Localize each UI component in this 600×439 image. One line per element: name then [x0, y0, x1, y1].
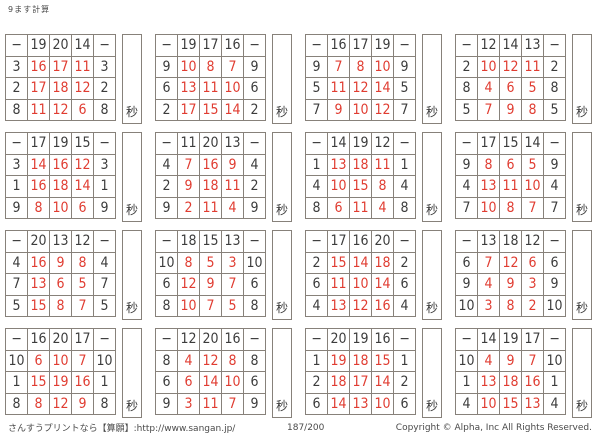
- answer-cell: 10: [372, 56, 394, 78]
- header-number: 15: [200, 231, 222, 253]
- seconds-box: 秒: [122, 132, 142, 222]
- copyright-text: Copyright © Alpha, Inc All Rights Reserv…: [396, 423, 592, 433]
- answer-cell: 7: [72, 295, 94, 317]
- minus-sign: −: [244, 329, 266, 351]
- row-number: 1: [306, 350, 328, 372]
- grid-row: 4 13 12 16 4: [306, 295, 416, 317]
- answer-cell: 10: [350, 99, 372, 121]
- grid-row: 1 13 18 16 1: [456, 372, 566, 394]
- grid-header-row: − 19 20 14 −: [6, 35, 116, 57]
- header-number: 19: [372, 35, 394, 57]
- answer-cell: 9: [328, 99, 350, 121]
- row-number: 1: [94, 176, 116, 198]
- grid-row: 2 17 18 12 2: [6, 78, 116, 100]
- calc-grid-group: − 17 15 14 − 9 8 6 5 9 4 13 11 10: [455, 132, 600, 230]
- calc-grid-group: − 18 15 13 − 10 8 5 3 10 6 12 9 7: [155, 230, 305, 328]
- minus-sign: −: [94, 329, 116, 351]
- answer-cell: 8: [522, 99, 544, 121]
- row-number: 8: [94, 393, 116, 415]
- answer-cell: 12: [50, 393, 72, 415]
- header-number: 20: [372, 231, 394, 253]
- minus-sign: −: [6, 231, 28, 253]
- row-number: 2: [156, 99, 178, 121]
- seconds-box: 秒: [122, 230, 142, 320]
- row-number: 6: [244, 274, 266, 296]
- answer-cell: 8: [222, 350, 244, 372]
- minus-sign: −: [244, 231, 266, 253]
- answer-cell: 17: [50, 56, 72, 78]
- answer-cell: 10: [178, 56, 200, 78]
- seconds-label: 秒: [426, 299, 438, 319]
- answer-cell: 8: [72, 252, 94, 274]
- row-number: 3: [6, 154, 28, 176]
- answer-cell: 6: [28, 350, 50, 372]
- row-number: 2: [306, 372, 328, 394]
- row-number: 2: [306, 252, 328, 274]
- minus-sign: −: [544, 133, 566, 155]
- grid-header-row: − 20 19 16 −: [306, 329, 416, 351]
- header-number: 16: [350, 231, 372, 253]
- seconds-box: 秒: [272, 328, 292, 418]
- row-number: 6: [306, 393, 328, 415]
- header-number: 16: [222, 35, 244, 57]
- seconds-label: 秒: [576, 299, 588, 319]
- answer-cell: 4: [478, 350, 500, 372]
- calc-grid-group: − 14 19 12 − 1 13 18 11 1 4 10 15: [305, 132, 455, 230]
- answer-cell: 17: [28, 78, 50, 100]
- minus-sign: −: [306, 231, 328, 253]
- row-number: 4: [456, 176, 478, 198]
- answer-cell: 9: [200, 274, 222, 296]
- answer-cell: 16: [28, 176, 50, 198]
- grid-row: 8 6 11 4 8: [306, 197, 416, 219]
- answer-cell: 11: [200, 78, 222, 100]
- seconds-box: 秒: [122, 328, 142, 418]
- answer-cell: 7: [478, 99, 500, 121]
- header-number: 20: [200, 133, 222, 155]
- minus-sign: −: [394, 329, 416, 351]
- grid-header-row: − 19 17 16 −: [156, 35, 266, 57]
- answer-cell: 5: [522, 154, 544, 176]
- row-number: 6: [544, 252, 566, 274]
- row-number: 6: [456, 252, 478, 274]
- row-number: 10: [456, 350, 478, 372]
- answer-cell: 12: [500, 56, 522, 78]
- row-number: 8: [394, 197, 416, 219]
- row-number: 7: [394, 99, 416, 121]
- calc-grid-group: − 14 19 17 − 10 4 9 7 10 1 13 18 1: [455, 328, 600, 426]
- seconds-label: 秒: [426, 103, 438, 123]
- answer-cell: 4: [478, 78, 500, 100]
- header-number: 16: [328, 35, 350, 57]
- header-number: 20: [50, 329, 72, 351]
- minus-sign: −: [456, 329, 478, 351]
- grid-row: 9 2 11 4 9: [156, 197, 266, 219]
- seconds-box: 秒: [572, 328, 592, 418]
- answer-cell: 4: [372, 197, 394, 219]
- row-number: 6: [394, 393, 416, 415]
- answer-cell: 8: [500, 197, 522, 219]
- row-number: 9: [456, 274, 478, 296]
- row-number: 8: [306, 197, 328, 219]
- seconds-box: 秒: [272, 132, 292, 222]
- row-number: 2: [244, 176, 266, 198]
- answer-cell: 10: [222, 78, 244, 100]
- row-number: 7: [544, 197, 566, 219]
- answer-cell: 7: [178, 154, 200, 176]
- header-number: 18: [178, 231, 200, 253]
- row-number: 1: [544, 372, 566, 394]
- seconds-box: 秒: [572, 132, 592, 222]
- grid-row: 8 10 7 5 8: [156, 295, 266, 317]
- minus-sign: −: [394, 133, 416, 155]
- grid-header-row: − 16 17 19 −: [306, 35, 416, 57]
- answer-cell: 6: [500, 154, 522, 176]
- grid-row: 7 9 10 12 7: [306, 99, 416, 121]
- calc-grid: − 16 17 19 − 9 7 8 10 9 5 11 12 14: [305, 34, 416, 121]
- header-number: 19: [500, 329, 522, 351]
- header-number: 16: [222, 329, 244, 351]
- calc-grid: − 17 15 14 − 9 8 6 5 9 4 13 11 10: [455, 132, 566, 219]
- grid-row: 5 15 8 7 5: [6, 295, 116, 317]
- calc-grid: − 11 20 13 − 4 7 16 9 4 2 9 18 11: [155, 132, 266, 219]
- answer-cell: 18: [372, 252, 394, 274]
- row-number: 6: [306, 274, 328, 296]
- row-number: 4: [306, 295, 328, 317]
- row-number: 5: [394, 78, 416, 100]
- answer-cell: 13: [28, 274, 50, 296]
- grid-row: 6 6 14 10 6: [156, 372, 266, 394]
- row-number: 9: [244, 393, 266, 415]
- header-number: 16: [28, 329, 50, 351]
- answer-cell: 6: [178, 372, 200, 394]
- calc-grid: − 13 18 12 − 6 7 12 6 6 9 4 9 3: [455, 230, 566, 317]
- minus-sign: −: [156, 133, 178, 155]
- answer-cell: 12: [72, 78, 94, 100]
- calc-grid-group: − 17 16 20 − 2 15 14 18 2 6 11 10: [305, 230, 455, 328]
- row-number: 10: [6, 350, 28, 372]
- grid-row: 10 3 8 2 10: [456, 295, 566, 317]
- grid-header-row: − 17 16 20 −: [306, 231, 416, 253]
- row-number: 10: [456, 295, 478, 317]
- worksheet-grid: − 19 20 14 − 3 16 17 11 3 2 17 18: [5, 34, 600, 426]
- answer-cell: 6: [50, 274, 72, 296]
- row-number: 6: [244, 78, 266, 100]
- row-number: 8: [94, 99, 116, 121]
- row-number: 8: [6, 99, 28, 121]
- row-number: 2: [94, 78, 116, 100]
- answer-cell: 19: [50, 372, 72, 394]
- minus-sign: −: [6, 329, 28, 351]
- row-number: 5: [6, 295, 28, 317]
- answer-cell: 11: [72, 56, 94, 78]
- answer-cell: 12: [500, 252, 522, 274]
- answer-cell: 15: [328, 252, 350, 274]
- minus-sign: −: [94, 231, 116, 253]
- calc-grid-group: − 11 20 13 − 4 7 16 9 4 2 9 18 11: [155, 132, 305, 230]
- calc-grid-group: − 20 19 16 − 1 19 18 15 1 2 18 17: [305, 328, 455, 426]
- header-number: 15: [72, 133, 94, 155]
- seconds-box: 秒: [122, 34, 142, 124]
- calc-grid-group: − 16 20 17 − 10 6 10 7 10 1 15 19: [5, 328, 155, 426]
- grid-row: 7 13 6 5 7: [6, 274, 116, 296]
- answer-cell: 14: [200, 372, 222, 394]
- grid-row: 9 4 9 3 9: [456, 274, 566, 296]
- answer-cell: 10: [478, 197, 500, 219]
- header-number: 20: [50, 35, 72, 57]
- row-number: 9: [156, 393, 178, 415]
- row-number: 9: [306, 56, 328, 78]
- answer-cell: 9: [500, 350, 522, 372]
- header-number: 19: [350, 329, 372, 351]
- calc-grid: − 14 19 17 − 10 4 9 7 10 1 13 18 1: [455, 328, 566, 415]
- answer-cell: 7: [200, 295, 222, 317]
- grid-row: 2 17 15 14 2: [156, 99, 266, 121]
- row-number: 5: [94, 295, 116, 317]
- grid-header-row: − 14 19 12 −: [306, 133, 416, 155]
- answer-cell: 6: [522, 252, 544, 274]
- row-number: 1: [94, 372, 116, 394]
- grid-row: 4 13 11 10 4: [456, 176, 566, 198]
- row-number: 6: [244, 372, 266, 394]
- seconds-box: 秒: [422, 328, 442, 418]
- grid-header-row: − 12 14 13 −: [456, 35, 566, 57]
- answer-cell: 16: [200, 154, 222, 176]
- grid-row: 5 7 9 8 5: [456, 99, 566, 121]
- header-number: 11: [178, 133, 200, 155]
- answer-cell: 4: [222, 197, 244, 219]
- seconds-box: 秒: [422, 230, 442, 320]
- minus-sign: −: [394, 231, 416, 253]
- grid-row: 3 16 17 11 3: [6, 56, 116, 78]
- grid-header-row: − 20 13 12 −: [6, 231, 116, 253]
- minus-sign: −: [306, 329, 328, 351]
- answer-cell: 10: [478, 56, 500, 78]
- header-number: 19: [50, 133, 72, 155]
- row-number: 4: [394, 295, 416, 317]
- grid-row: 6 12 9 7 6: [156, 274, 266, 296]
- header-number: 14: [500, 35, 522, 57]
- header-number: 13: [50, 231, 72, 253]
- seconds-label: 秒: [276, 299, 288, 319]
- calc-grid: − 18 15 13 − 10 8 5 3 10 6 12 9 7: [155, 230, 266, 317]
- header-number: 13: [478, 231, 500, 253]
- grid-row: 4 10 15 8 4: [306, 176, 416, 198]
- grid-header-row: − 17 15 14 −: [456, 133, 566, 155]
- answer-cell: 9: [500, 274, 522, 296]
- grid-row: 4 7 16 9 4: [156, 154, 266, 176]
- row-number: 9: [544, 154, 566, 176]
- header-number: 13: [522, 35, 544, 57]
- row-number: 6: [156, 274, 178, 296]
- minus-sign: −: [94, 35, 116, 57]
- answer-cell: 14: [372, 372, 394, 394]
- calc-grid: − 16 20 17 − 10 6 10 7 10 1 15 19: [5, 328, 116, 415]
- answer-cell: 15: [372, 350, 394, 372]
- answer-cell: 9: [178, 176, 200, 198]
- answer-cell: 6: [500, 78, 522, 100]
- calc-grid-group: − 19 17 16 − 9 10 8 7 9 6 13 11 10: [155, 34, 305, 132]
- seconds-label: 秒: [426, 397, 438, 417]
- row-number: 9: [6, 197, 28, 219]
- answer-cell: 18: [350, 154, 372, 176]
- answer-cell: 7: [222, 274, 244, 296]
- row-number: 3: [94, 154, 116, 176]
- answer-cell: 12: [178, 274, 200, 296]
- answer-cell: 7: [222, 56, 244, 78]
- row-number: 5: [544, 99, 566, 121]
- page-number: 187/200: [287, 423, 324, 433]
- answer-cell: 8: [372, 176, 394, 198]
- answer-cell: 11: [372, 154, 394, 176]
- header-number: 12: [522, 231, 544, 253]
- answer-cell: 12: [372, 99, 394, 121]
- seconds-box: 秒: [572, 230, 592, 320]
- grid-row: 1 13 18 11 1: [306, 154, 416, 176]
- header-number: 17: [350, 35, 372, 57]
- row-number: 4: [6, 252, 28, 274]
- header-number: 14: [478, 329, 500, 351]
- answer-cell: 13: [328, 295, 350, 317]
- answer-cell: 18: [50, 78, 72, 100]
- row-number: 10: [244, 252, 266, 274]
- grid-row: 5 11 12 14 5: [306, 78, 416, 100]
- answer-cell: 5: [522, 78, 544, 100]
- row-number: 1: [306, 154, 328, 176]
- header-number: 17: [28, 133, 50, 155]
- answer-cell: 11: [28, 99, 50, 121]
- row-number: 9: [544, 274, 566, 296]
- row-number: 1: [6, 176, 28, 198]
- grid-row: 6 11 10 14 6: [306, 274, 416, 296]
- answer-cell: 7: [478, 252, 500, 274]
- row-number: 4: [544, 393, 566, 415]
- answer-cell: 14: [28, 154, 50, 176]
- header-number: 17: [522, 329, 544, 351]
- answer-cell: 11: [200, 197, 222, 219]
- seconds-label: 秒: [126, 397, 138, 417]
- calc-grid-group: − 17 19 15 − 3 14 16 12 3 1 16 18: [5, 132, 155, 230]
- grid-header-row: − 17 19 15 −: [6, 133, 116, 155]
- row-number: 7: [306, 99, 328, 121]
- answer-cell: 12: [200, 350, 222, 372]
- header-number: 19: [28, 35, 50, 57]
- row-number: 7: [456, 197, 478, 219]
- answer-cell: 19: [328, 350, 350, 372]
- row-number: 9: [456, 154, 478, 176]
- answer-cell: 8: [178, 252, 200, 274]
- grid-header-row: − 18 15 13 −: [156, 231, 266, 253]
- row-number: 6: [156, 372, 178, 394]
- grid-row: 4 16 9 8 4: [6, 252, 116, 274]
- minus-sign: −: [6, 35, 28, 57]
- header-number: 17: [328, 231, 350, 253]
- answer-cell: 8: [28, 393, 50, 415]
- seconds-label: 秒: [276, 397, 288, 417]
- row-number: 4: [244, 154, 266, 176]
- grid-row: 8 11 12 6 8: [6, 99, 116, 121]
- calc-grid-group: − 19 20 14 − 3 16 17 11 3 2 17 18: [5, 34, 155, 132]
- answer-cell: 13: [478, 176, 500, 198]
- row-number: 3: [6, 56, 28, 78]
- grid-row: 1 16 18 14 1: [6, 176, 116, 198]
- minus-sign: −: [6, 133, 28, 155]
- minus-sign: −: [544, 231, 566, 253]
- answer-cell: 4: [178, 350, 200, 372]
- answer-cell: 12: [350, 295, 372, 317]
- row-number: 9: [156, 56, 178, 78]
- grid-row: 3 14 16 12 3: [6, 154, 116, 176]
- calc-grid: − 19 20 14 − 3 16 17 11 3 2 17 18: [5, 34, 116, 121]
- header-number: 14: [328, 133, 350, 155]
- row-number: 8: [244, 350, 266, 372]
- header-number: 14: [522, 133, 544, 155]
- row-number: 1: [394, 350, 416, 372]
- grid-row: 8 8 12 9 8: [6, 393, 116, 415]
- minus-sign: −: [156, 35, 178, 57]
- answer-cell: 9: [72, 393, 94, 415]
- grid-header-row: − 12 20 16 −: [156, 329, 266, 351]
- answer-cell: 10: [222, 372, 244, 394]
- header-number: 17: [478, 133, 500, 155]
- minus-sign: −: [94, 133, 116, 155]
- answer-cell: 11: [328, 274, 350, 296]
- seconds-label: 秒: [576, 397, 588, 417]
- grid-header-row: − 13 18 12 −: [456, 231, 566, 253]
- grid-row: 9 10 8 7 9: [156, 56, 266, 78]
- grid-row: 9 8 6 5 9: [456, 154, 566, 176]
- answer-cell: 4: [478, 274, 500, 296]
- row-number: 2: [394, 252, 416, 274]
- seconds-box: 秒: [272, 34, 292, 124]
- row-number: 8: [544, 78, 566, 100]
- answer-cell: 9: [222, 154, 244, 176]
- calc-grid: − 19 17 16 − 9 10 8 7 9 6 13 11 10: [155, 34, 266, 121]
- calc-grid-group: − 12 20 16 − 8 4 12 8 8 6 6 14 10: [155, 328, 305, 426]
- answer-cell: 6: [328, 197, 350, 219]
- seconds-label: 秒: [576, 103, 588, 123]
- answer-cell: 12: [350, 78, 372, 100]
- header-number: 20: [328, 329, 350, 351]
- row-number: 10: [544, 295, 566, 317]
- answer-cell: 10: [50, 197, 72, 219]
- minus-sign: −: [306, 133, 328, 155]
- answer-cell: 2: [522, 295, 544, 317]
- grid-row: 2 18 17 14 2: [306, 372, 416, 394]
- answer-cell: 5: [72, 274, 94, 296]
- answer-cell: 15: [28, 372, 50, 394]
- grid-header-row: − 11 20 13 −: [156, 133, 266, 155]
- answer-cell: 15: [200, 99, 222, 121]
- answer-cell: 17: [178, 99, 200, 121]
- seconds-box: 秒: [572, 34, 592, 124]
- answer-cell: 10: [328, 176, 350, 198]
- calc-grid-group: − 12 14 13 − 2 10 12 11 2 8 4 6 5: [455, 34, 600, 132]
- answer-cell: 8: [200, 56, 222, 78]
- page-title: 9ます計算: [8, 4, 50, 15]
- header-number: 17: [200, 35, 222, 57]
- worksheet-page: 9ます計算 − 19 20 14 − 3 16 17 11 3: [0, 0, 600, 439]
- row-number: 4: [394, 176, 416, 198]
- calc-grid: − 12 20 16 − 8 4 12 8 8 6 6 14 10: [155, 328, 266, 415]
- seconds-label: 秒: [426, 201, 438, 221]
- grid-row: 1 15 19 16 1: [6, 372, 116, 394]
- answer-cell: 7: [522, 350, 544, 372]
- answer-cell: 16: [28, 252, 50, 274]
- seconds-label: 秒: [126, 299, 138, 319]
- answer-cell: 15: [500, 393, 522, 415]
- grid-header-row: − 14 19 17 −: [456, 329, 566, 351]
